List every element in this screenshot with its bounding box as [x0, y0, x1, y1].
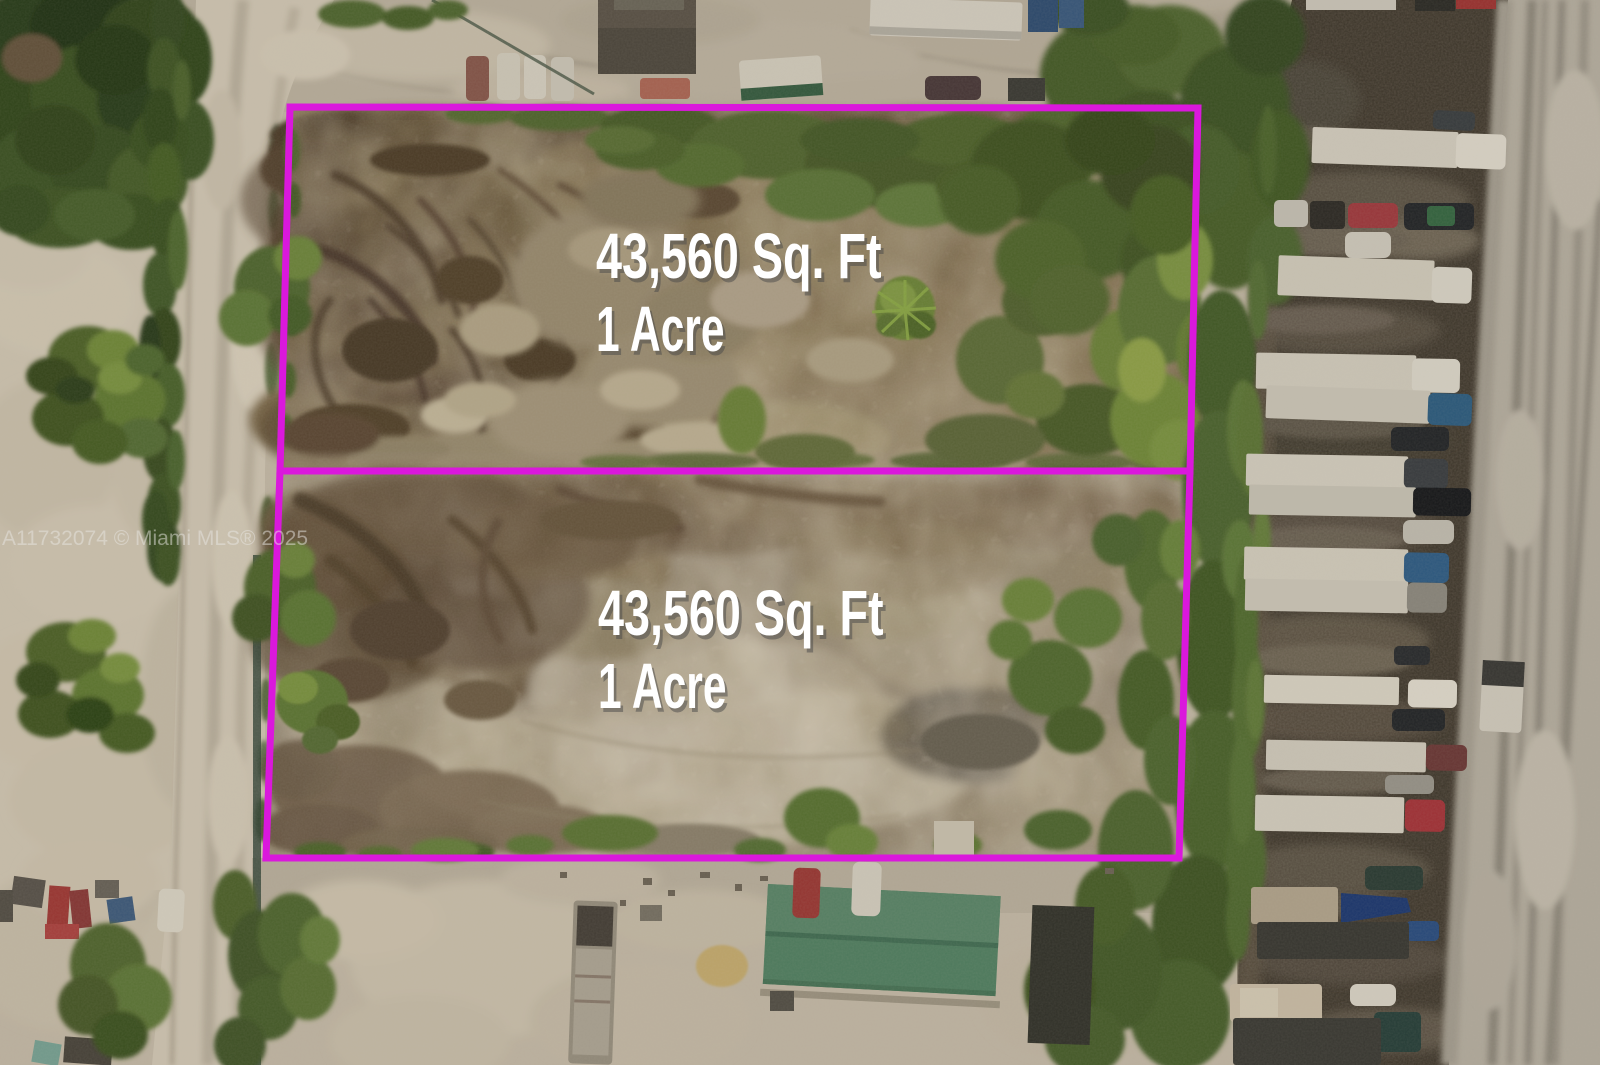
- svg-text:43,560 Sq. Ft: 43,560 Sq. Ft: [598, 577, 884, 649]
- svg-text:1 Acre: 1 Acre: [598, 650, 727, 722]
- svg-text:A11732074 © Miami MLS® 2025: A11732074 © Miami MLS® 2025: [2, 527, 308, 550]
- svg-text:1 Acre: 1 Acre: [596, 293, 725, 365]
- svg-text:43,560 Sq. Ft: 43,560 Sq. Ft: [596, 220, 882, 292]
